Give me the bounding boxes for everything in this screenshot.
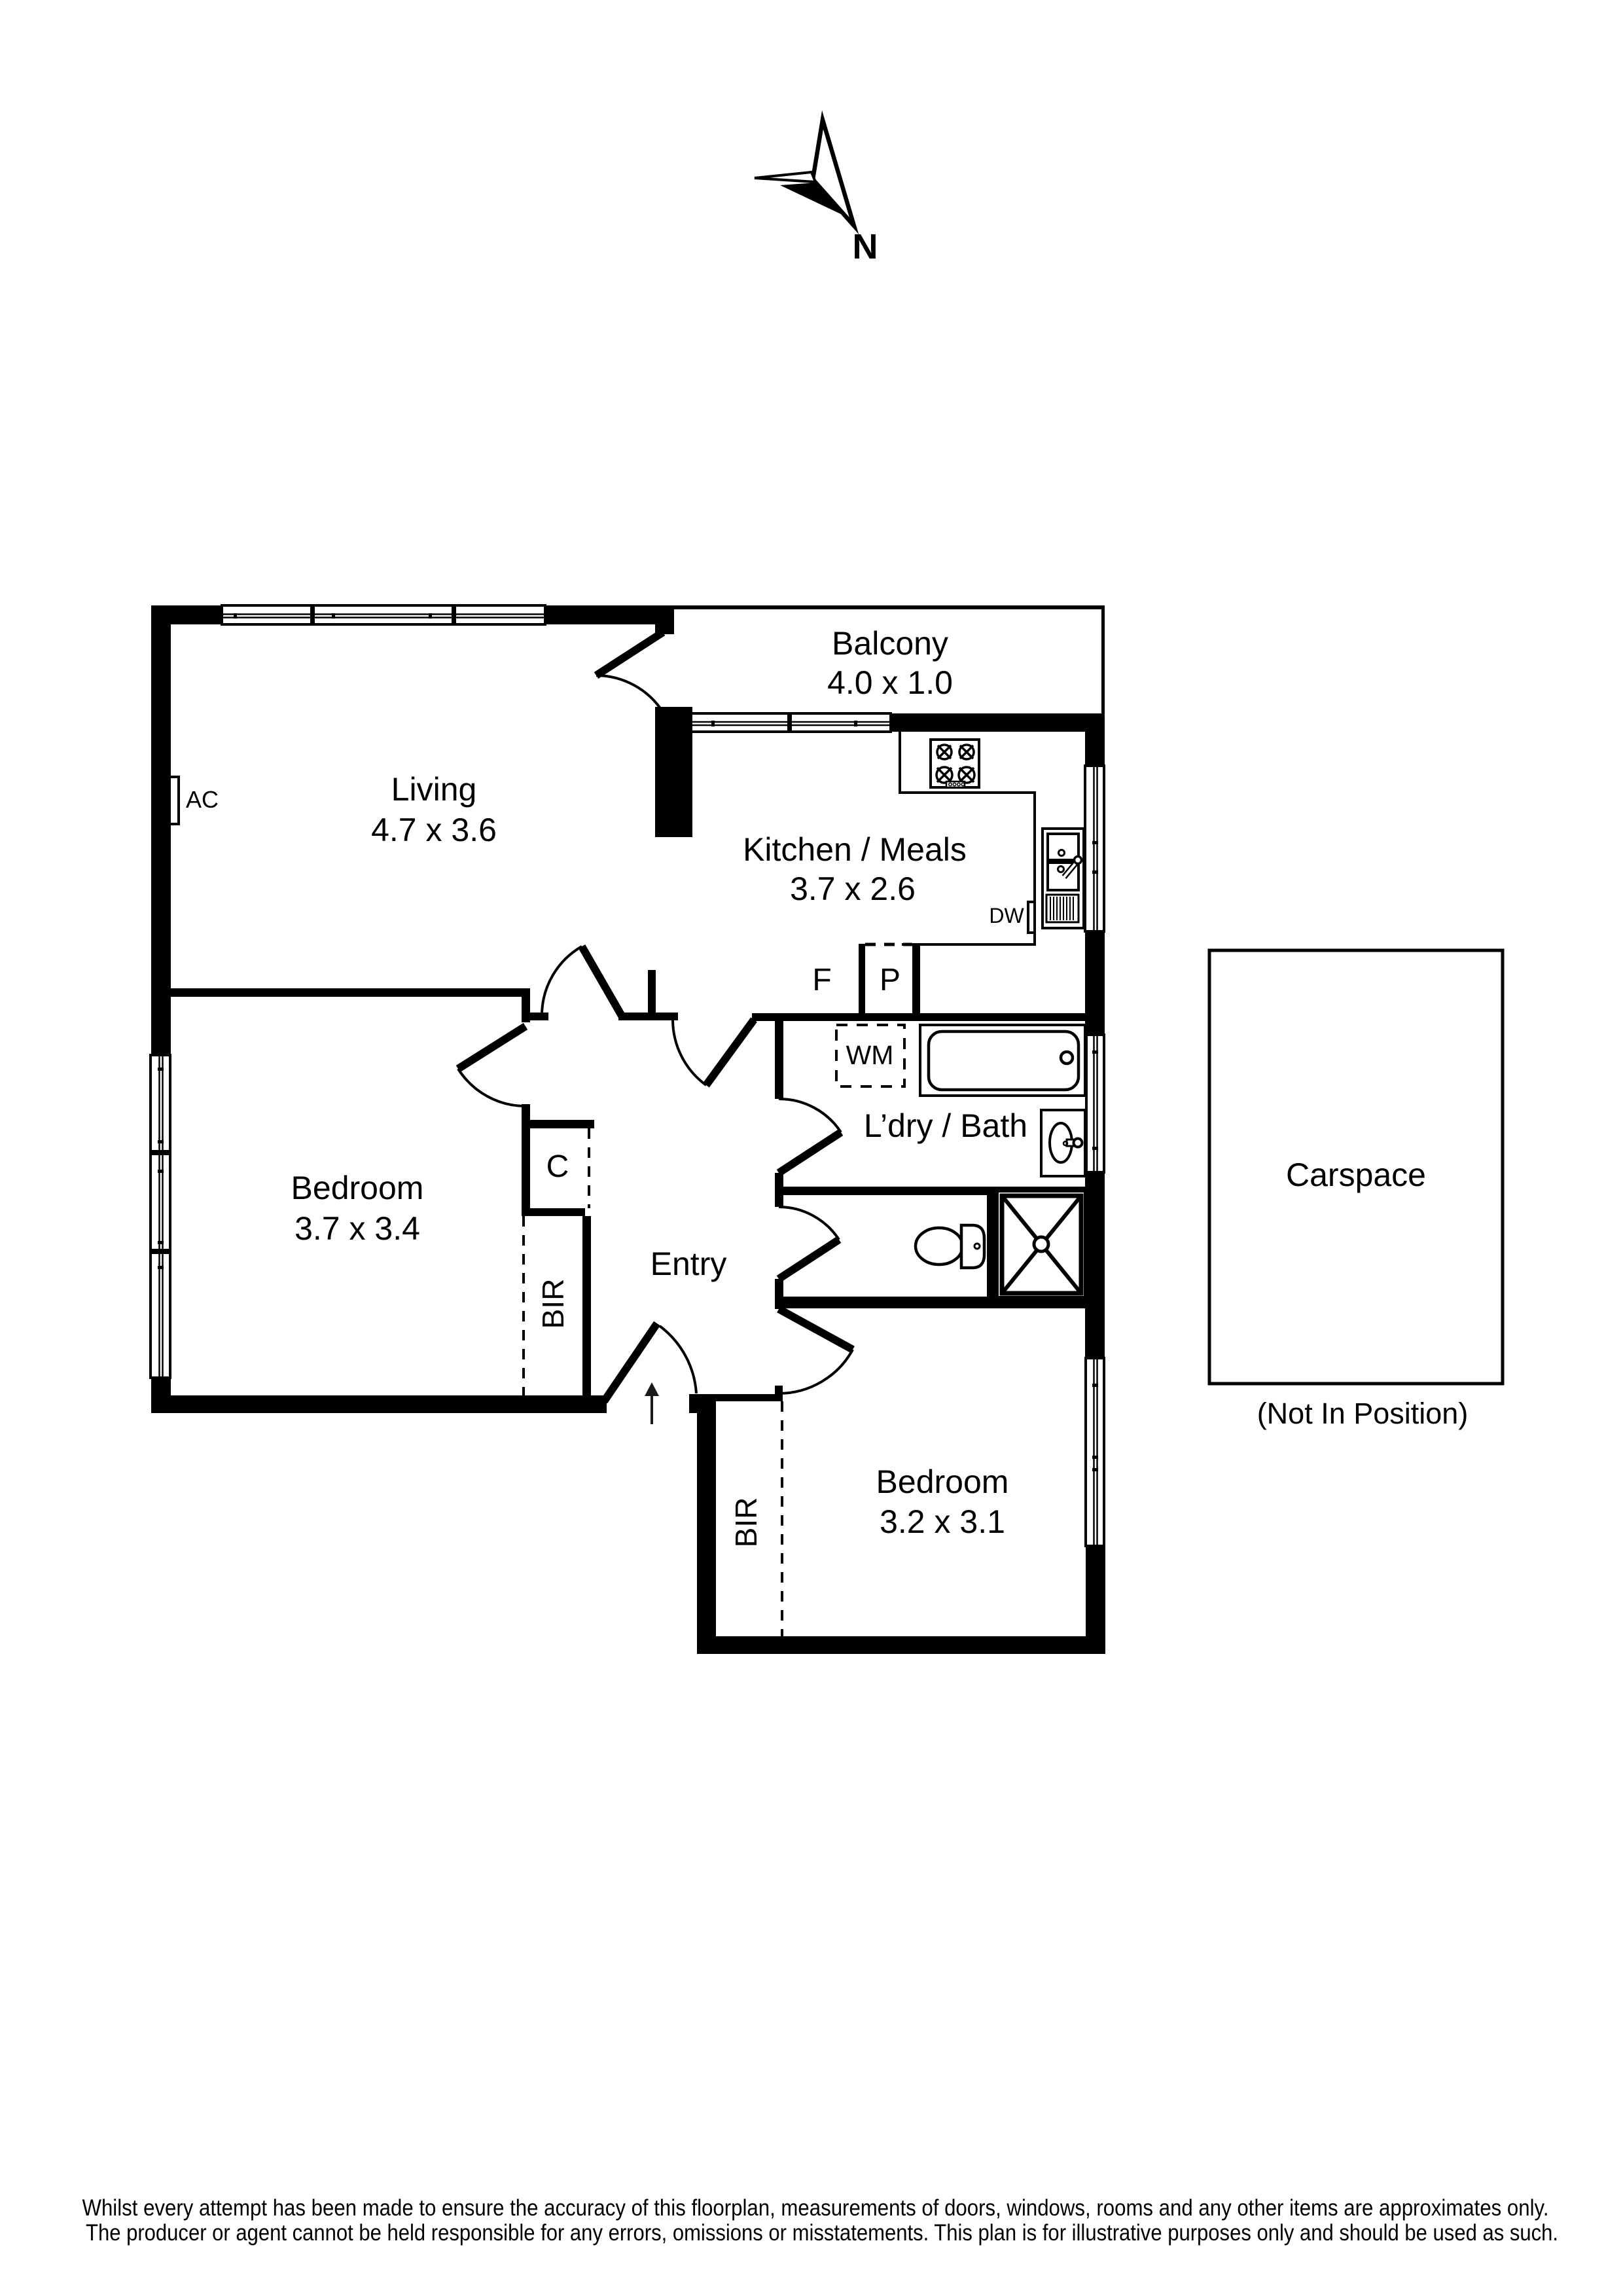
svg-text:3.2 x 3.1: 3.2 x 3.1 xyxy=(880,1503,1005,1540)
svg-text:Bedroom: Bedroom xyxy=(876,1463,1009,1500)
svg-text:Whilst every attempt has been: Whilst every attempt has been made to en… xyxy=(82,2195,1549,2221)
svg-text:Living: Living xyxy=(391,771,477,808)
svg-text:BIR: BIR xyxy=(729,1498,763,1548)
svg-text:N: N xyxy=(853,227,878,266)
svg-text:DW: DW xyxy=(989,904,1024,927)
svg-text:4.7 x 3.6: 4.7 x 3.6 xyxy=(371,812,497,848)
svg-text:L’dry / Bath: L’dry / Bath xyxy=(864,1107,1027,1144)
svg-text:Carspace: Carspace xyxy=(1286,1157,1426,1193)
svg-text:The producer or agent cannot b: The producer or agent cannot be held res… xyxy=(86,2220,1558,2246)
svg-text:4.0 x 1.0: 4.0 x 1.0 xyxy=(827,664,953,701)
svg-text:WM: WM xyxy=(846,1040,894,1070)
svg-text:F: F xyxy=(812,963,831,997)
svg-text:BIR: BIR xyxy=(536,1279,570,1329)
svg-text:P: P xyxy=(880,963,901,997)
svg-text:Kitchen / Meals: Kitchen / Meals xyxy=(743,831,967,868)
svg-text:(Not In Position): (Not In Position) xyxy=(1257,1397,1469,1430)
svg-text:C: C xyxy=(546,1149,569,1184)
svg-text:Entry: Entry xyxy=(651,1246,727,1282)
svg-text:AC: AC xyxy=(186,786,219,813)
svg-text:Bedroom: Bedroom xyxy=(291,1170,424,1206)
svg-text:3.7 x 3.4: 3.7 x 3.4 xyxy=(294,1210,420,1247)
svg-text:Balcony: Balcony xyxy=(832,625,948,662)
svg-text:3.7 x 2.6: 3.7 x 2.6 xyxy=(790,870,916,907)
